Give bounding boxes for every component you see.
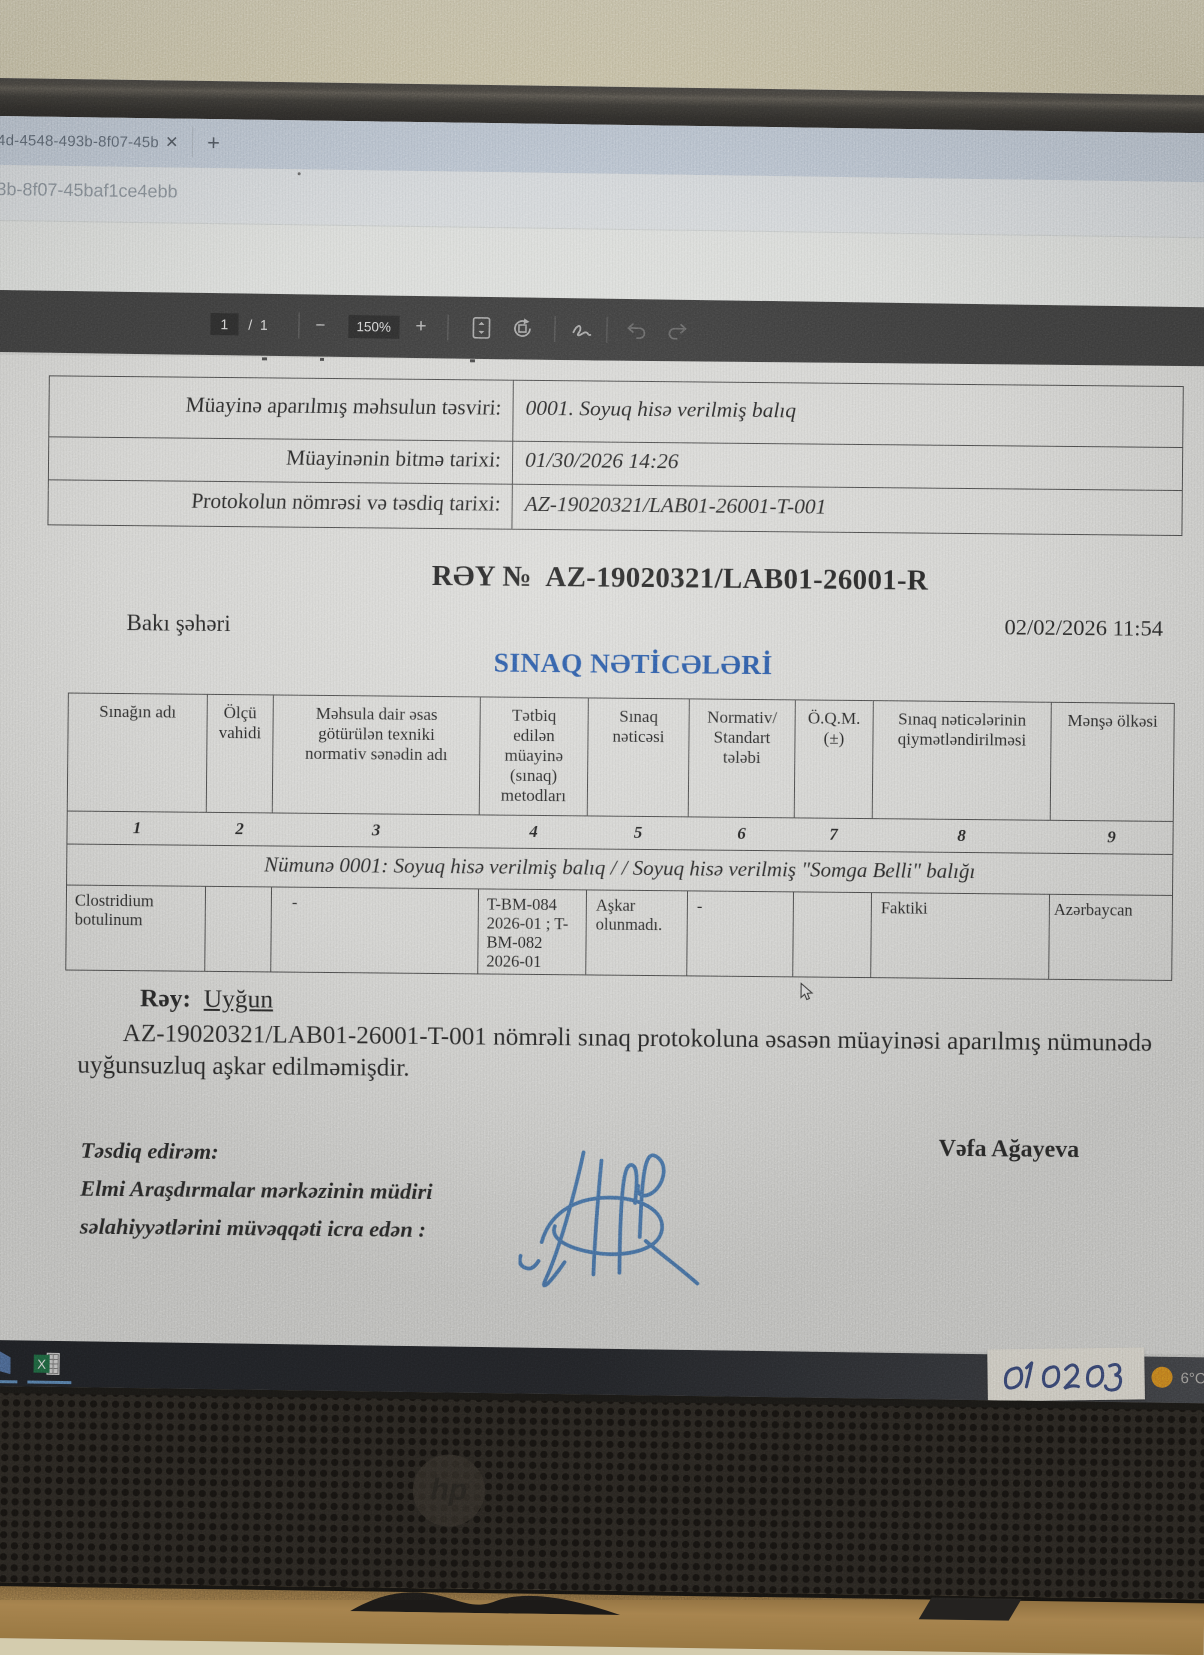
- svg-text:X: X: [37, 1357, 46, 1372]
